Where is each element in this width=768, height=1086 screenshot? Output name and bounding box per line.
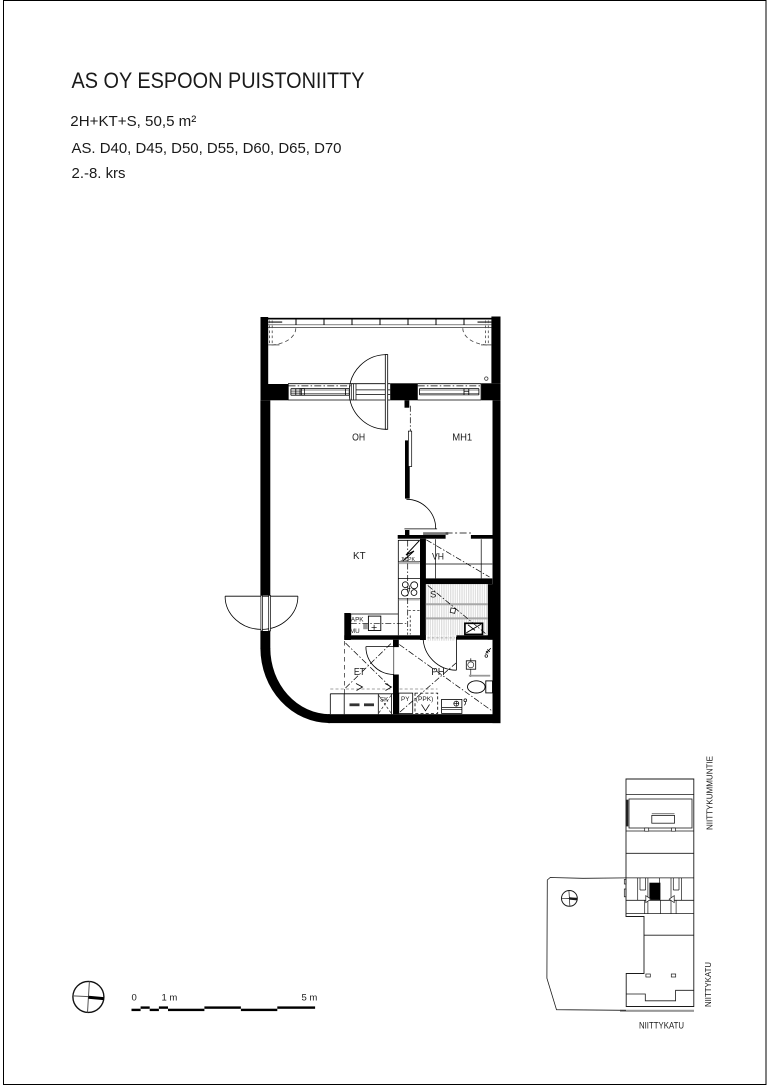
svg-text:SK: SK (380, 697, 389, 704)
svg-text:(PPK): (PPK) (416, 696, 434, 703)
svg-text:2H+KT+S, 50,5 m²: 2H+KT+S, 50,5 m² (70, 113, 196, 130)
svg-text:5 m: 5 m (302, 992, 318, 1003)
svg-text:2.-8. krs: 2.-8. krs (72, 165, 126, 182)
svg-text:ET: ET (354, 667, 365, 678)
svg-text:PH: PH (431, 667, 445, 678)
svg-text:KT: KT (353, 551, 366, 562)
svg-text:S: S (430, 589, 436, 600)
svg-text:PY: PY (401, 696, 410, 703)
svg-text:AS OY ESPOON PUISTONIITTY: AS OY ESPOON PUISTONIITTY (72, 68, 365, 93)
svg-text:OH: OH (352, 432, 365, 443)
svg-text:1 m: 1 m (162, 992, 178, 1003)
svg-text:VH: VH (432, 551, 444, 561)
svg-text:APK: APK (351, 617, 364, 624)
svg-text:NIITTYKATU: NIITTYKATU (703, 962, 713, 1007)
svg-text:NIITTYKUMMUNTIE: NIITTYKUMMUNTIE (705, 756, 715, 830)
svg-text:MH1: MH1 (452, 432, 472, 443)
svg-text:0: 0 (132, 992, 137, 1003)
svg-text:MU: MU (350, 628, 360, 635)
svg-text:NIITTYKATU: NIITTYKATU (639, 1021, 684, 1031)
svg-text:AS. D40, D45, D50, D55, D60, D: AS. D40, D45, D50, D55, D60, D65, D70 (72, 140, 342, 157)
